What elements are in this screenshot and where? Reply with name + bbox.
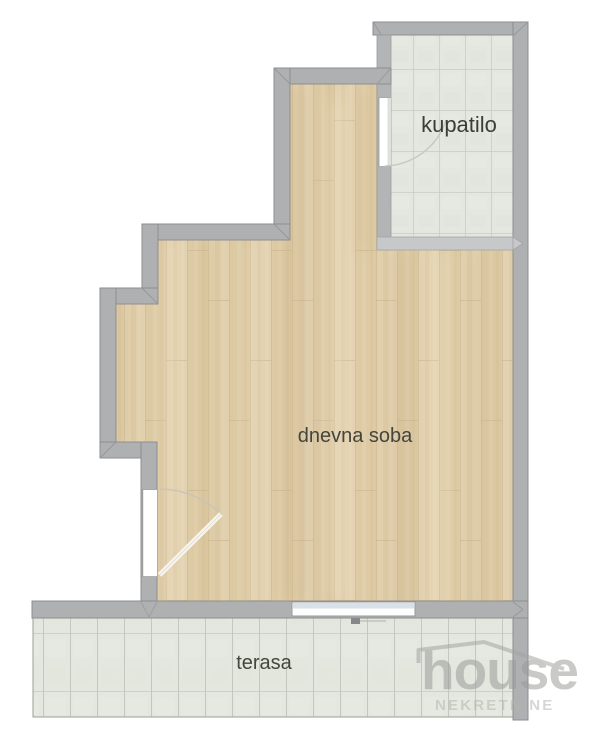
svg-text:house: house [421,639,578,701]
svg-text:dnevna soba: dnevna soba [298,425,413,447]
svg-text:NEKRETNINE: NEKRETNINE [435,697,555,714]
svg-text:terasa: terasa [236,652,292,674]
svg-text:kupatilo: kupatilo [421,112,497,137]
